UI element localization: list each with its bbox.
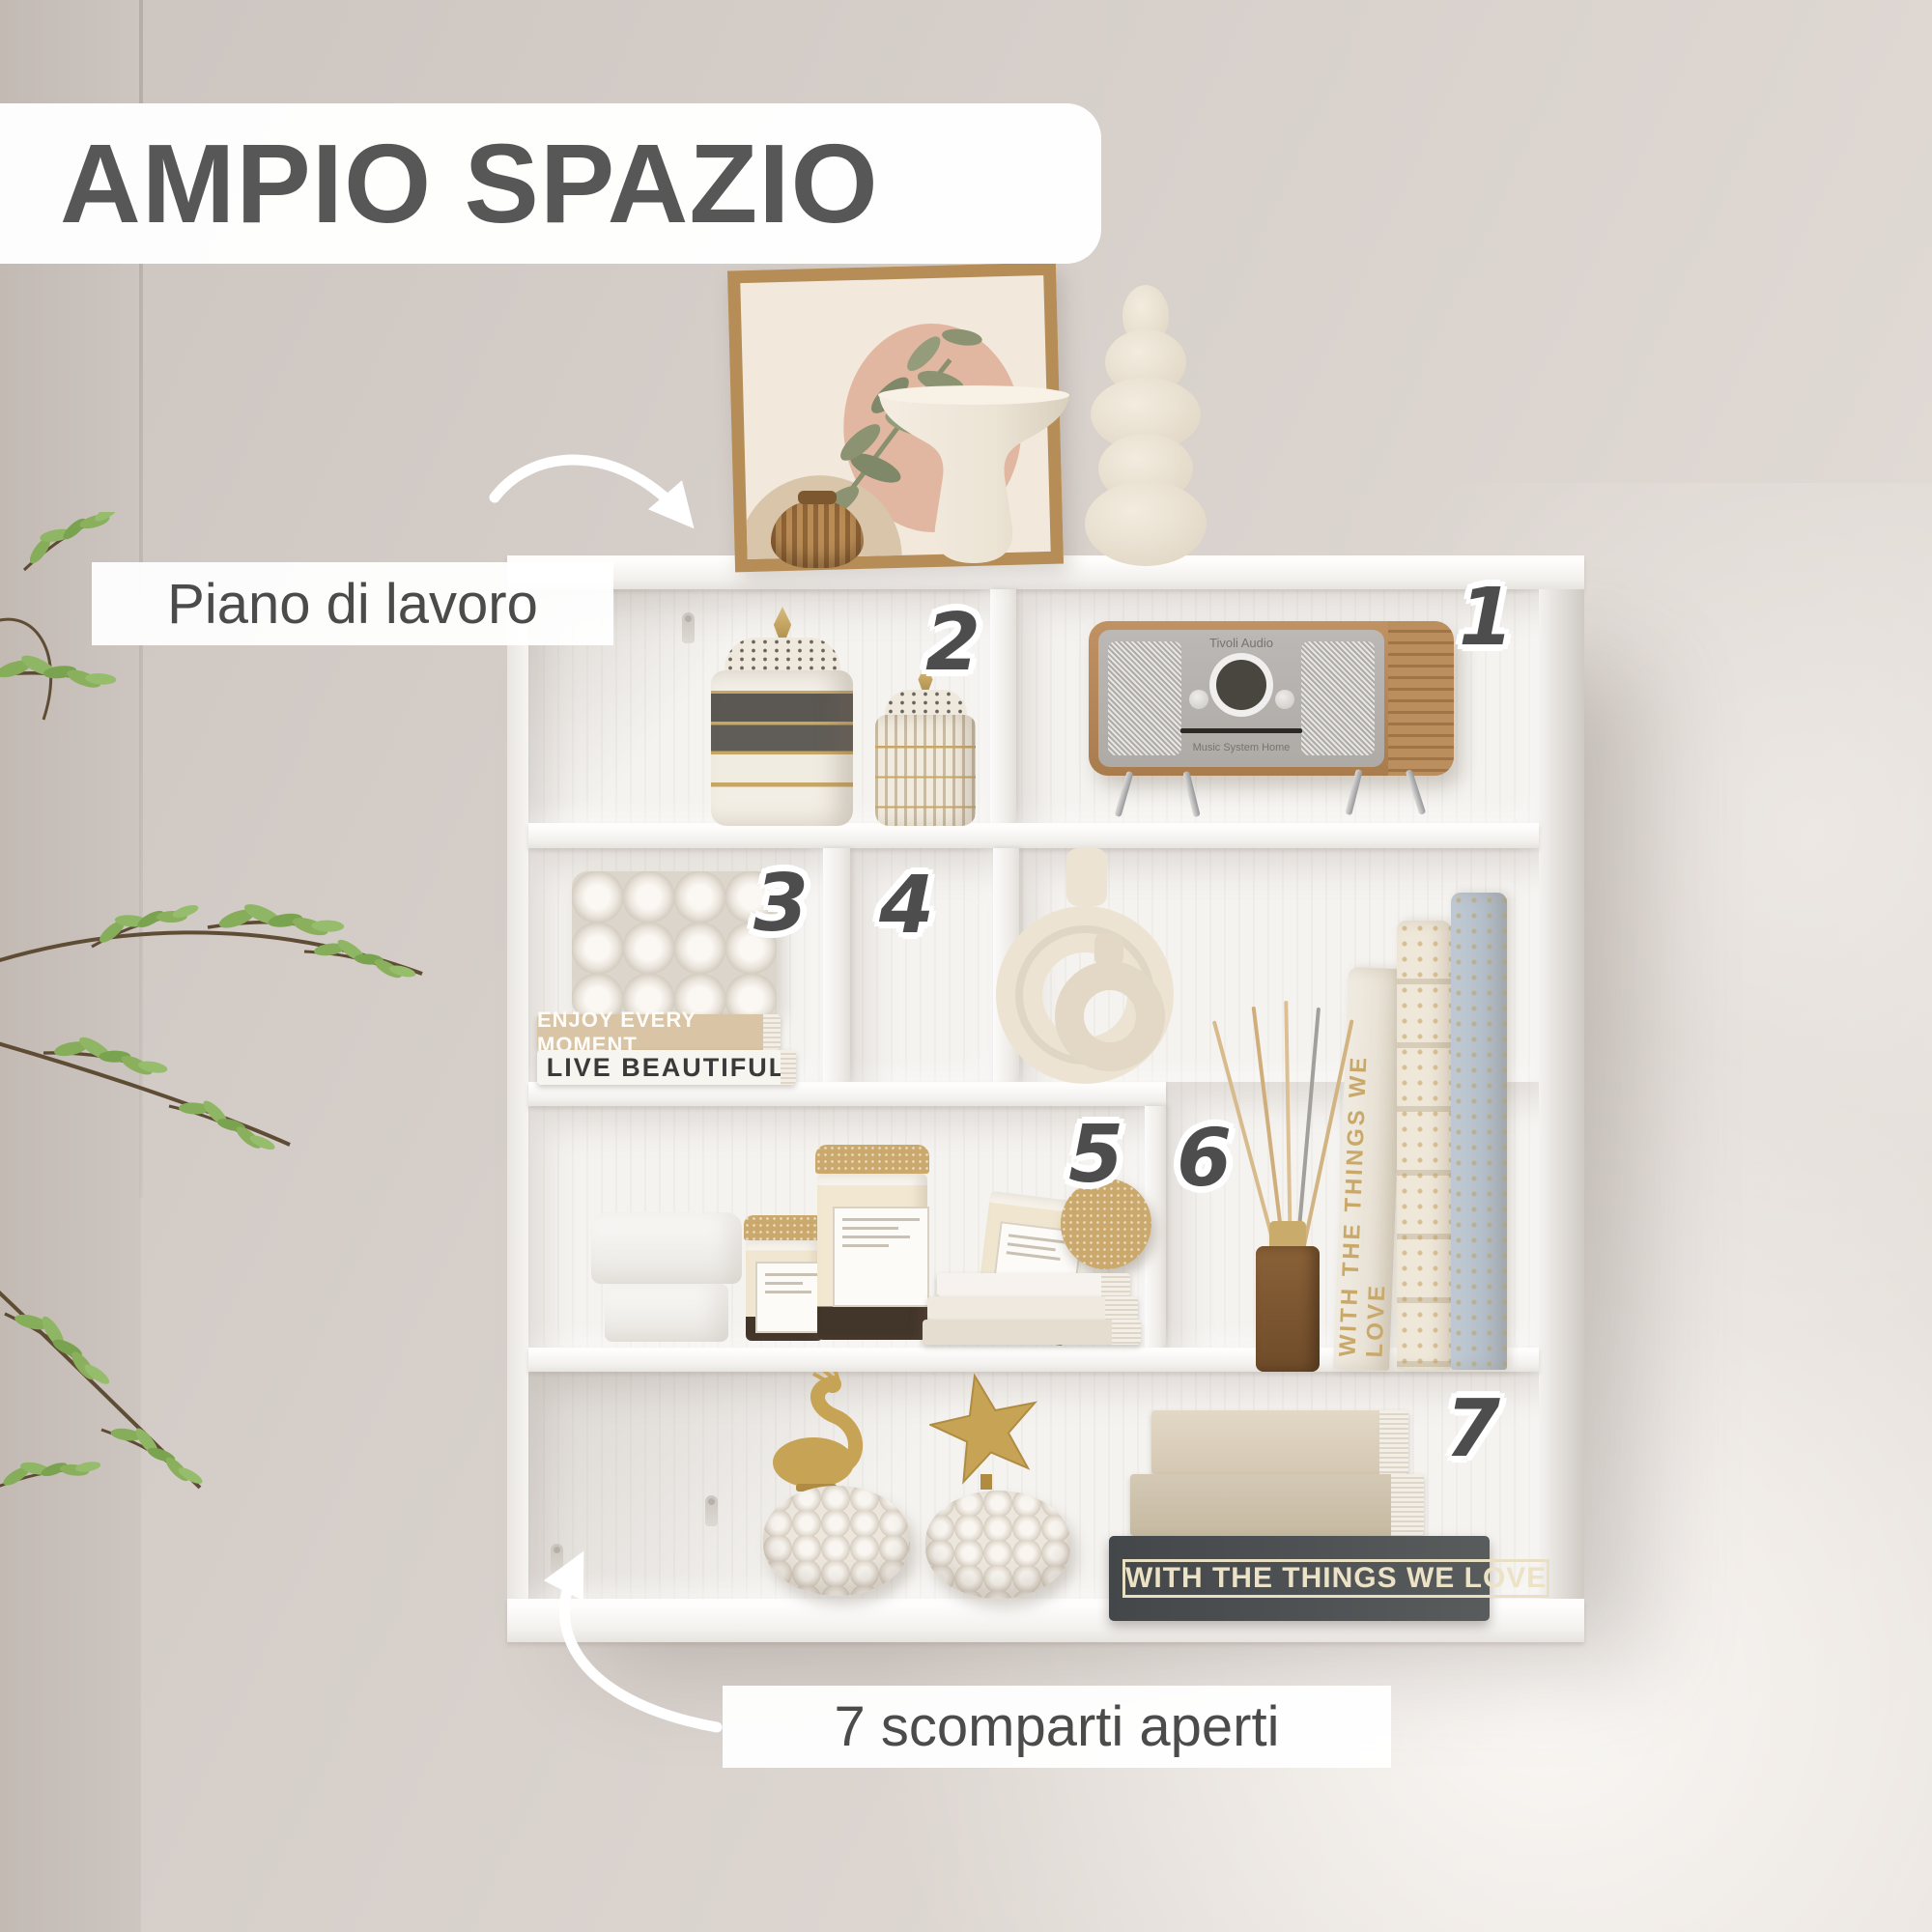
book-spine-enjoy: ENJOY EVERY MOMENT bbox=[537, 1014, 781, 1050]
candle-jar-2 bbox=[817, 1174, 927, 1340]
standing-book-blue bbox=[1451, 893, 1507, 1370]
jar-small-lid bbox=[885, 690, 967, 717]
book-pages-edge-2 bbox=[781, 1050, 796, 1085]
product-scene: Tivoli Audio Music System Home ENJOY EVE… bbox=[0, 0, 1932, 1932]
shelf-number-6: 6 bbox=[1177, 1113, 1232, 1205]
bobble-jar-star bbox=[925, 1491, 1070, 1599]
shelf-number-7: 7 bbox=[1445, 1383, 1500, 1475]
radio-brand-text: Tivoli Audio bbox=[1193, 636, 1290, 650]
ring-vases bbox=[995, 844, 1179, 1084]
bobble-jar-swan bbox=[763, 1486, 910, 1596]
bubble-cube-vase bbox=[572, 871, 777, 1016]
ginger-jar-large bbox=[711, 670, 853, 826]
book-spine-live-text: LIVE BEAUTIFUL bbox=[547, 1053, 787, 1083]
jar-large-lid bbox=[724, 638, 840, 672]
shelf-number-1: 1 bbox=[1459, 572, 1514, 664]
stacked-book-2 bbox=[927, 1296, 1138, 1320]
white-pot-base bbox=[605, 1284, 728, 1342]
book-pages-edge-1 bbox=[763, 1014, 781, 1050]
candle-jar-2-lid bbox=[815, 1145, 929, 1174]
shelf-number-5: 5 bbox=[1068, 1109, 1123, 1201]
white-pot-top bbox=[591, 1212, 742, 1284]
amber-glass-votive bbox=[771, 500, 864, 568]
shelf-divider-row1 bbox=[990, 589, 1016, 823]
radio-wood-side bbox=[1388, 621, 1454, 776]
stacked-book-3 bbox=[923, 1320, 1141, 1345]
radio-knob-left bbox=[1189, 690, 1208, 709]
radio-grille-right bbox=[1301, 641, 1375, 755]
radio-front-panel: Tivoli Audio Music System Home bbox=[1098, 630, 1384, 767]
title-card: AMPIO SPAZIO bbox=[0, 103, 1101, 264]
amber-votive-rim bbox=[798, 491, 837, 504]
book-spine-live: LIVE BEAUTIFUL bbox=[537, 1050, 796, 1085]
decorative-plant bbox=[0, 512, 440, 1546]
tivoli-radio: Tivoli Audio Music System Home bbox=[1089, 621, 1454, 776]
callout-top-text: Piano di lavoro bbox=[167, 572, 538, 637]
beige-book-1 bbox=[1151, 1410, 1408, 1474]
dark-book-title: WITH THE THINGS WE LOVE bbox=[1125, 1562, 1547, 1595]
radio-knob-right bbox=[1275, 690, 1294, 709]
keyhole-mark-1 bbox=[682, 612, 695, 643]
shelf-divider-4-left bbox=[823, 848, 850, 1082]
radio-model-text: Music System Home bbox=[1183, 742, 1299, 753]
radio-cd-slot bbox=[1180, 728, 1302, 733]
keyhole-mark-3 bbox=[705, 1495, 718, 1526]
shelf-number-3: 3 bbox=[753, 858, 809, 950]
candle-jar-2-label bbox=[833, 1207, 929, 1307]
star-figurine bbox=[929, 1368, 1043, 1493]
shelf-right-panel bbox=[1539, 589, 1584, 1599]
pedestal-candleholder bbox=[862, 384, 1087, 568]
callout-bottom-text: 7 scomparti aperti bbox=[835, 1694, 1280, 1759]
callout-scomparti: 7 scomparti aperti bbox=[723, 1686, 1391, 1768]
dark-book: WITH THE THINGS WE LOVE bbox=[1109, 1536, 1490, 1621]
standing-book-ornate bbox=[1397, 921, 1451, 1370]
spiral-vase bbox=[1068, 281, 1223, 568]
shelf-number-2: 2 bbox=[925, 597, 980, 689]
shelf-number-4: 4 bbox=[879, 860, 934, 952]
radio-display bbox=[1216, 660, 1266, 710]
reed-diffuser-bottle bbox=[1256, 1246, 1320, 1372]
shelf-left-panel bbox=[507, 589, 528, 1599]
beige-book-2 bbox=[1130, 1474, 1424, 1536]
shelf-board-2 bbox=[528, 1082, 1166, 1106]
page-title: AMPIO SPAZIO bbox=[0, 119, 879, 248]
candle-jar-1-lid bbox=[744, 1215, 825, 1240]
stacked-book-1 bbox=[937, 1273, 1130, 1296]
radio-grille-left bbox=[1108, 641, 1181, 755]
swan-figurine bbox=[771, 1372, 879, 1492]
keyhole-mark-2 bbox=[551, 1544, 563, 1575]
candle-jar-1 bbox=[746, 1240, 823, 1341]
ginger-jar-small bbox=[875, 715, 976, 826]
arrow-top-icon bbox=[495, 460, 684, 517]
dark-book-title-plate: WITH THE THINGS WE LOVE bbox=[1122, 1559, 1549, 1598]
callout-piano-di-lavoro: Piano di lavoro bbox=[92, 562, 613, 645]
